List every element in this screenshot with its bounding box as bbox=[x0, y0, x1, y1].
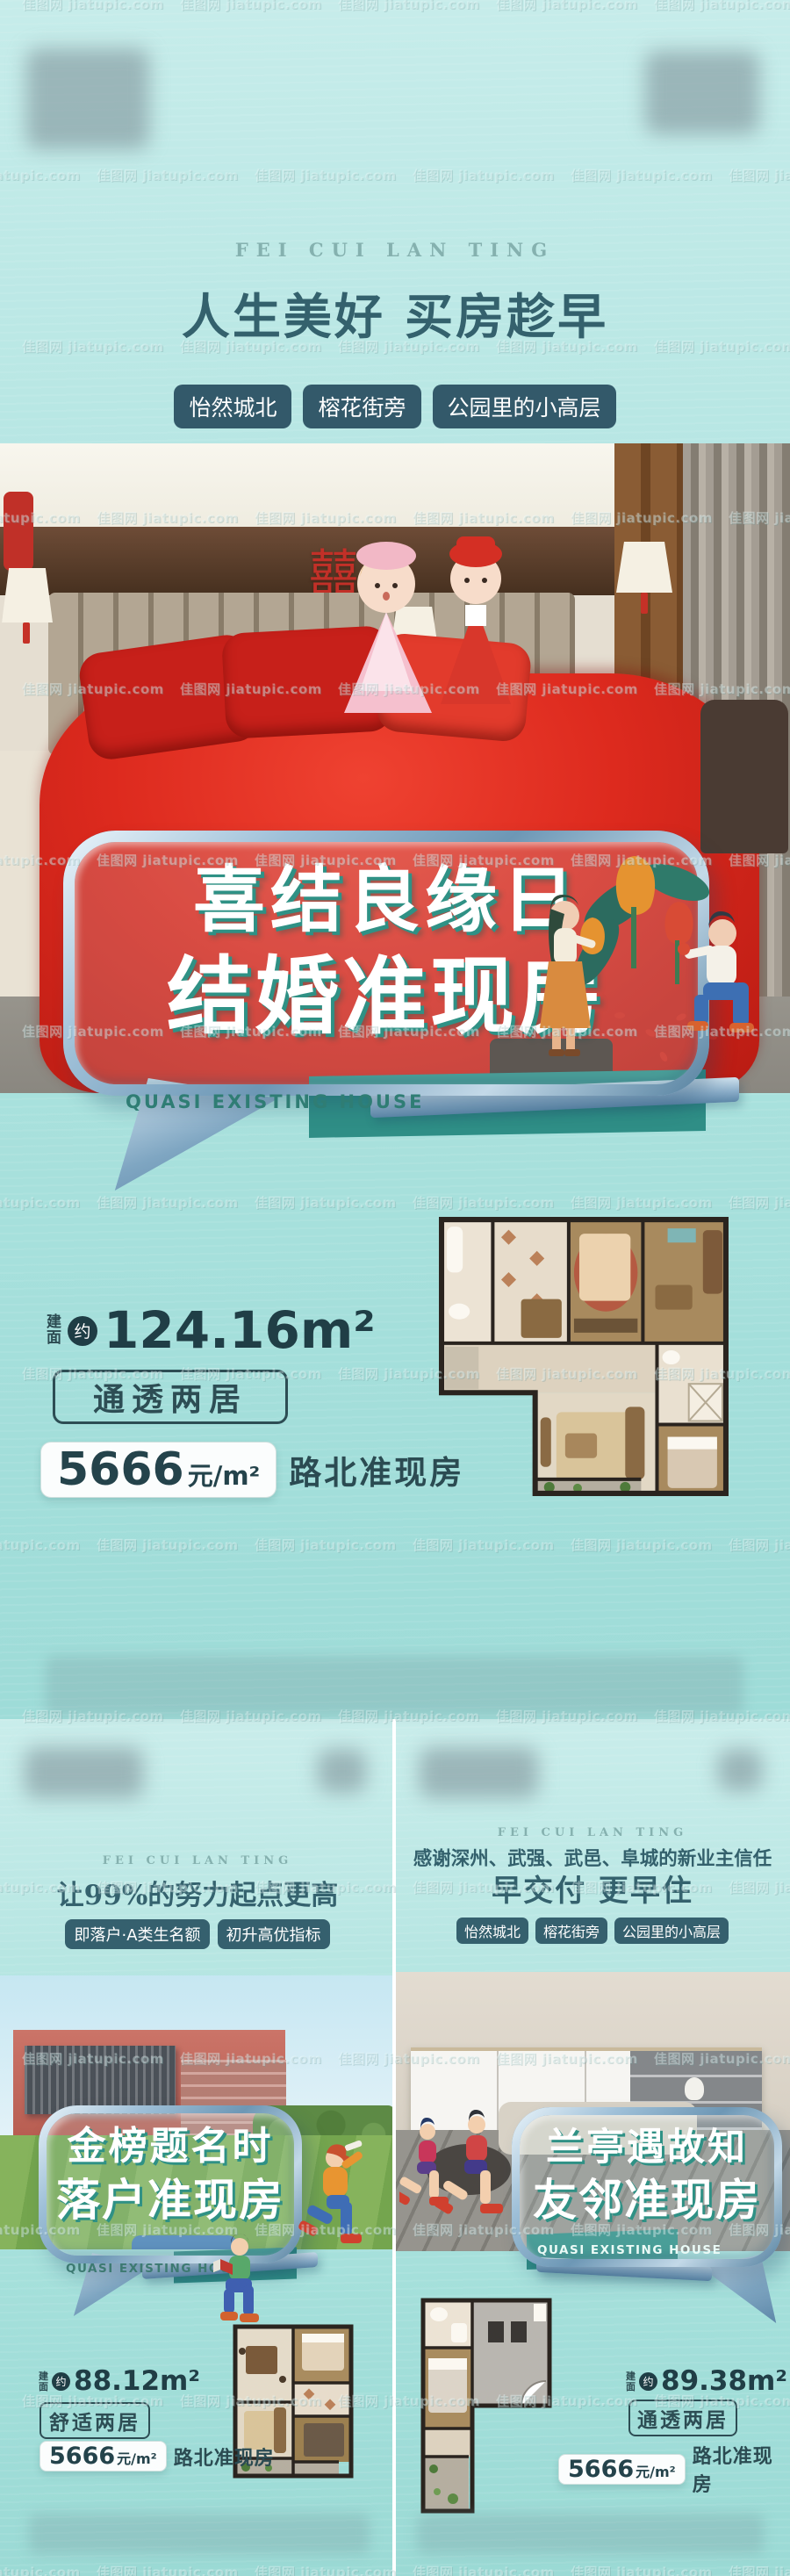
brand-name: FEI CUI LAN TING bbox=[0, 239, 790, 261]
area-info: 建 面 约 124.16m² bbox=[47, 1306, 376, 1355]
tag-pill: 即落户·A类生名额 bbox=[65, 1919, 209, 1949]
blurred-disclaimer bbox=[29, 2514, 370, 2554]
blurred-logo bbox=[318, 1749, 366, 1793]
approx-badge: 约 bbox=[639, 2372, 657, 2391]
price-info: 5666 元/m² 路北准现房 bbox=[558, 2441, 790, 2497]
area-label: 建 面 bbox=[39, 2371, 48, 2392]
price-unit: 元/m² bbox=[117, 2447, 157, 2468]
price-unit: 元/m² bbox=[188, 1456, 261, 1493]
tag-pill: 初升高优指标 bbox=[218, 1919, 330, 1949]
approx-badge: 约 bbox=[52, 2372, 70, 2391]
blurred-logo bbox=[420, 1747, 538, 1798]
price-box: 5666 元/m² bbox=[558, 2454, 686, 2485]
reading-boy-illustration bbox=[213, 2233, 268, 2331]
area-label-char: 面 bbox=[47, 1331, 61, 1347]
runners-illustration bbox=[399, 2105, 513, 2259]
poster-right: FEI CUI LAN TING 感谢深州、武强、武邑、阜城的新业主信任 早交付… bbox=[395, 1719, 790, 2576]
blurred-logo bbox=[25, 1747, 143, 1798]
building-louver bbox=[25, 2046, 176, 2114]
area-label-char: 面 bbox=[626, 2382, 636, 2393]
tag-pill: 怡然城北 bbox=[174, 385, 291, 428]
poster-title: 人生美好 买房趁早 bbox=[0, 277, 790, 348]
tag-pill: 公园里的小高层 bbox=[433, 385, 616, 428]
bubble-headline-2: 友邻准现房 bbox=[520, 2178, 774, 2222]
tag-pills: 怡然城北 榕花街旁 公园里的小高层 bbox=[395, 1918, 790, 1944]
tag-pills: 怡然城北 榕花街旁 公园里的小高层 bbox=[0, 385, 790, 428]
price-value: 5666 bbox=[57, 1447, 184, 1493]
layout-tag-box: 通透两居 bbox=[53, 1370, 288, 1424]
price-note: 路北准现房 bbox=[174, 2443, 275, 2471]
table-lamp bbox=[2, 568, 53, 622]
tag-pill: 榕花街旁 bbox=[535, 1918, 607, 1944]
price-info: 5666 元/m² 路北准现房 bbox=[40, 1442, 464, 1498]
red-knot-decor bbox=[4, 492, 33, 571]
area-value: 88.12m² bbox=[74, 2369, 200, 2394]
vase bbox=[685, 2077, 704, 2100]
floor-plan-main bbox=[436, 1214, 731, 1499]
poster-title: 早交付 更早住 bbox=[395, 1867, 790, 1910]
area-label-char: 建 bbox=[626, 2371, 636, 2382]
area-value: 89.38m² bbox=[661, 2369, 787, 2394]
price-note: 路北准现房 bbox=[693, 2441, 790, 2497]
bubble-headline-2: 落户准现房 bbox=[47, 2178, 294, 2222]
lamp-knot bbox=[23, 622, 30, 644]
couple-illustration bbox=[487, 821, 790, 1097]
price-box: 5666 元/m² bbox=[39, 2441, 167, 2472]
running-student-illustration bbox=[291, 2139, 376, 2260]
wedding-dolls bbox=[325, 524, 553, 722]
bubble-caption: QUASI EXISTING HOUSE bbox=[126, 1091, 424, 1112]
price-note: 路北准现房 bbox=[289, 1446, 464, 1493]
bubble-headline-1: 金榜题名时 bbox=[47, 2127, 294, 2166]
area-label-char: 建 bbox=[47, 1315, 61, 1331]
brand-name: FEI CUI LAN TING bbox=[0, 1854, 395, 1867]
price-box: 5666 元/m² bbox=[40, 1442, 276, 1498]
tag-pill: 榕花街旁 bbox=[303, 385, 420, 428]
area-label-char: 建 bbox=[39, 2371, 48, 2382]
poster-divider bbox=[392, 1719, 396, 2576]
floor-lamp bbox=[616, 542, 672, 593]
area-label: 建 面 bbox=[626, 2371, 636, 2392]
brand-name: FEI CUI LAN TING bbox=[395, 1826, 790, 1839]
blurred-logo bbox=[26, 48, 149, 149]
blurred-logo bbox=[718, 1749, 762, 1791]
price-value: 5666 bbox=[568, 2457, 634, 2481]
area-value: 124.16m² bbox=[104, 1306, 376, 1355]
floor-plan-right bbox=[420, 2297, 553, 2516]
area-info: 建 面 约 89.38m² bbox=[626, 2369, 787, 2394]
blurred-logo bbox=[645, 51, 759, 134]
tag-pill: 怡然城北 bbox=[456, 1918, 528, 1944]
area-label-char: 面 bbox=[39, 2382, 48, 2393]
blurred-disclaimer bbox=[417, 2514, 764, 2554]
area-label: 建 面 bbox=[47, 1315, 61, 1347]
layout-tag-box: 通透两居 bbox=[628, 2400, 737, 2436]
poster-series: FEI CUI LAN TING 人生美好 买房趁早 怡然城北 榕花街旁 公园里… bbox=[0, 0, 790, 2576]
blurred-disclaimer bbox=[46, 1656, 743, 1716]
tag-pills: 即落户·A类生名额 初升高优指标 bbox=[0, 1919, 395, 1949]
poster-title: 让99%的努力起点更高 bbox=[0, 1873, 395, 1912]
price-value: 5666 bbox=[49, 2444, 115, 2468]
bubble-headline-1: 兰亭遇故知 bbox=[520, 2129, 774, 2167]
price-unit: 元/m² bbox=[636, 2460, 676, 2481]
bubble-caption: QUASI EXISTING HOUSE bbox=[537, 2243, 722, 2257]
tag-pill: 公园里的小高层 bbox=[614, 1918, 729, 1944]
approx-badge: 约 bbox=[68, 1316, 97, 1346]
area-info: 建 面 约 88.12m² bbox=[39, 2369, 200, 2394]
poster-left: FEI CUI LAN TING 让99%的努力起点更高 即落户·A类生名额 初… bbox=[0, 1719, 395, 2576]
price-info: 5666 元/m² 路北准现房 bbox=[39, 2441, 275, 2472]
lamp-knot bbox=[641, 593, 648, 614]
layout-tag-box: 舒适两居 bbox=[39, 2402, 150, 2439]
poster-main: FEI CUI LAN TING 人生美好 买房趁早 怡然城北 榕花街旁 公园里… bbox=[0, 0, 790, 1719]
